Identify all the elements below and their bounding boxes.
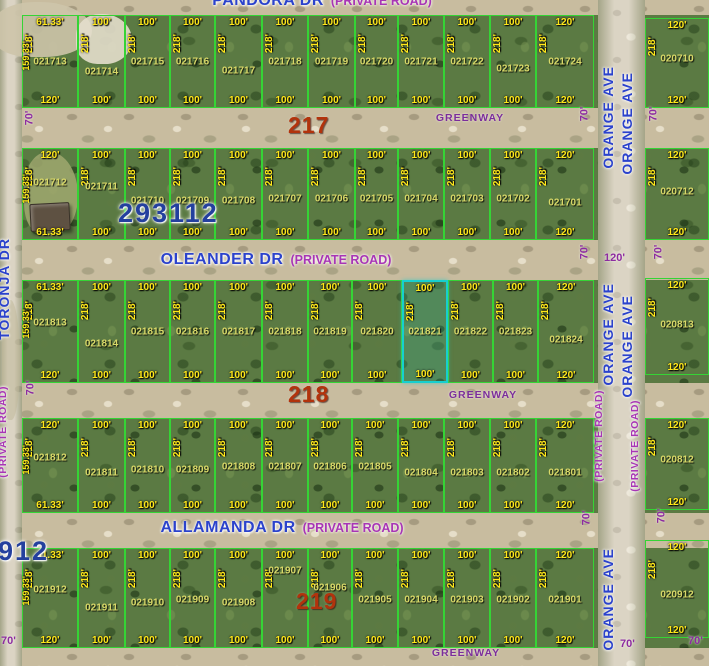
parcel-id-label: 021803 [445,467,489,478]
lot-frontage-label: 100' [491,420,535,431]
lot-frontage-label: 100' [353,635,397,646]
lot-frontage-label: 120' [646,420,708,431]
parcel-021723[interactable]: 100'100'218'021723 [490,15,536,108]
parcel-id-label: 021717 [216,65,261,76]
lot-frontage-label: 100' [171,500,214,511]
lot-depth-label: 218' [172,34,183,53]
parcel-021701[interactable]: 120'120'218'021701 [536,148,594,240]
parcel-021805[interactable]: 100'100'218'021805 [352,418,398,513]
lot-depth-label: 218' [538,167,549,186]
lot-depth-label: 218' [172,569,183,588]
lot-frontage-label: 100' [79,420,124,431]
lot-frontage-label: 100' [216,227,261,238]
lot-depth-label: 218' [217,301,228,320]
street-label-orange-ave: ORANGE AVE [600,548,616,651]
parcel-021804[interactable]: 100'100'218'021804 [398,418,444,513]
block-number-217: 217 [288,112,329,139]
road-width-label: 70' [655,509,667,524]
parcel-021705[interactable]: 100'100'218'021705 [355,148,398,240]
parcel-021716[interactable]: 100'100'218'021716 [170,15,215,108]
parcel-id-label: 021715 [126,56,169,67]
parcel-id-label: 021801 [537,467,593,478]
parcel-id-label: 021908 [216,597,261,608]
parcel-021719[interactable]: 100'100'218'021719 [308,15,355,108]
parcel-021908[interactable]: 100'100'218'021908 [215,548,262,648]
lot-frontage-label: 100' [263,370,307,381]
lot-depth-label: 218' [446,34,457,53]
parcel-id-label: 021822 [449,326,492,337]
lot-frontage-label: 100' [171,282,214,293]
parcel-021902[interactable]: 100'100'218'021902 [490,548,536,648]
parcel-id-label: 020912 [646,589,708,600]
lot-depth-label: 218' [357,167,368,186]
parcel-id-label: 021810 [126,465,169,476]
parcel-id-label: 021813 [23,318,77,329]
lot-frontage-label: 100' [79,150,124,161]
parcel-021802[interactable]: 100'100'218'021802 [490,418,536,513]
lot-depth-label: 218' [264,167,275,186]
lot-frontage-label: 100' [356,150,397,161]
parcel-020712[interactable]: 120'120'218'020712 [645,148,709,240]
greenway-label: GREENWAY [436,112,504,124]
lot-frontage-label: 100' [399,95,443,106]
parcel-id-label: 021809 [171,465,214,476]
parcel-021708[interactable]: 100'100'218'021708 [215,148,262,240]
lot-frontage-label: 100' [263,17,307,28]
parcel-021702[interactable]: 100'100'218'021702 [490,148,536,240]
lot-frontage-label: 120' [646,497,708,508]
lot-depth-label: 218' [492,167,503,186]
parcel-id-label: 021907 [263,565,307,576]
street-label-orange-ave: ORANGE AVE [600,283,616,386]
parcel-021801[interactable]: 120'120'218'021801 [536,418,594,513]
parcel-id-label: 021721 [399,56,443,67]
parcel-021721[interactable]: 100'100'218'021721 [398,15,444,108]
lot-frontage-label: 100' [491,227,535,238]
lot-depth-label: 218' [264,34,275,53]
lot-frontage-label: 120' [646,280,708,291]
parcel-id-label: 021722 [445,56,489,67]
lot-depth-label: 218' [400,438,411,457]
parcel-id-label: 021724 [537,56,593,67]
block-number-219: 219 [296,588,337,615]
lot-frontage-label: 100' [404,369,446,380]
parcel-021809[interactable]: 100'100'218'021809 [170,418,215,513]
parcel-id-label: 021821 [404,326,446,337]
parcel-020812[interactable]: 120'120'218'020812 [645,418,709,510]
parcel-021815[interactable]: 100'100'218'021815 [125,280,170,383]
street-label-toronja-dr: TORONJA DR [0,238,12,340]
parcel-id-label: 021704 [399,193,443,204]
lot-depth-label: 218' [357,34,368,53]
parcel-id-label: 020710 [646,53,708,64]
lot-depth-label: 218' [310,34,321,53]
street-label-orange-ave: ORANGE AVE [619,72,635,175]
plat-number-912: 912 [0,536,49,567]
lot-frontage-label: 100' [171,550,214,561]
lot-depth-label: 218' [310,301,321,320]
lot-frontage-label: 100' [445,95,489,106]
parcel-021724[interactable]: 120'120'218'021724 [536,15,594,108]
lot-depth-label: 218' [310,438,321,457]
lot-frontage-label: 100' [263,635,307,646]
lot-frontage-label: 100' [353,550,397,561]
lot-frontage-label: 100' [126,635,169,646]
parcel-id-label: 021807 [263,462,307,473]
road-width-label: 120' [604,252,625,264]
lot-frontage-label: 100' [309,227,354,238]
lot-depth-label: 218' [540,301,551,320]
parcel-id-label: 021911 [79,602,124,613]
lot-depth-label: 218' [172,301,183,320]
lot-frontage-label: 120' [23,635,77,646]
lot-depth-label: 218' [446,438,457,457]
lot-frontage-label: 100' [263,227,307,238]
lot-depth-label: 218' [450,301,461,320]
street-suffix-text: (PRIVATE ROAD) [303,521,404,535]
parcel-id-label: 021706 [309,193,354,204]
parcel-id-label: 021820 [353,326,401,337]
lot-depth-label: 218' [217,34,228,53]
lot-frontage-label: 100' [309,95,354,106]
lot-frontage-label: 100' [491,95,535,106]
lot-depth-label: 218' [172,167,183,186]
lot-frontage-label: 100' [216,500,261,511]
lot-frontage-label: 100' [126,500,169,511]
parcel-021909[interactable]: 100'100'218'021909 [170,548,215,648]
parcel-id-label: 021811 [79,467,124,478]
lot-frontage-label: 100' [126,420,169,431]
parcel-021818[interactable]: 100'100'218'021818 [262,280,308,383]
lot-depth-label: 218' [538,569,549,588]
lot-depth-label: 218' [400,34,411,53]
street-name-text: OLEANDER DR [161,251,284,269]
parcel-021901[interactable]: 120'120'218'021901 [536,548,594,648]
parcel-021712[interactable]: 120'61.33'218'159.33'021712 [22,148,78,240]
parcel-id-label: 021723 [491,63,535,74]
lot-frontage-label: 100' [491,17,535,28]
lot-depth-label: 218' [495,301,506,320]
lot-frontage-label: 100' [491,635,535,646]
lot-frontage-label: 120' [537,150,593,161]
parcel-id-label: 021912 [23,585,77,596]
block-number-218: 218 [288,381,329,408]
lot-frontage-label: 100' [216,95,261,106]
lot-frontage-label: 100' [399,550,443,561]
parcel-021717[interactable]: 100'100'218'021717 [215,15,262,108]
parcel-021821[interactable]: 100'100'218'021821 [402,280,448,383]
street-label-oleander-dr: OLEANDER DR(PRIVATE ROAD) [161,251,392,269]
parcel-021706[interactable]: 100'100'218'021706 [308,148,355,240]
greenway-label: GREENWAY [432,647,500,659]
lot-frontage-label: 100' [399,635,443,646]
lot-frontage-label: 100' [126,282,169,293]
lot-frontage-label: 120' [537,17,593,28]
lot-depth-label: 218' [647,560,658,579]
lot-frontage-label: 100' [399,500,443,511]
lot-depth-label: 218' [354,438,365,457]
lot-frontage-label: 100' [126,95,169,106]
parcel-021707[interactable]: 100'100'218'021707 [262,148,308,240]
lot-depth-label: 218' [127,301,138,320]
lot-frontage-label: 100' [263,420,307,431]
parcel-id-label: 021901 [537,594,593,605]
parcel-021808[interactable]: 100'100'218'021808 [215,418,262,513]
lot-depth-label: 218' [492,569,503,588]
lot-frontage-label: 100' [309,550,351,561]
parcel-id-label: 021910 [126,597,169,608]
street-suffix-text: (PRIVATE ROAD) [331,0,432,8]
parcel-021713[interactable]: 61.33'120'218'159.33'021713 [22,15,78,108]
lot-frontage-label: 100' [216,150,261,161]
lot-frontage-label: 100' [399,227,443,238]
parcel-021816[interactable]: 100'100'218'021816 [170,280,215,383]
parcel-021904[interactable]: 100'100'218'021904 [398,548,444,648]
lot-frontage-label: 100' [171,635,214,646]
lot-frontage-label: 100' [79,282,124,293]
lot-frontage-label: 100' [399,150,443,161]
parcel-id-label: 021814 [79,338,124,349]
lot-frontage-label: 100' [445,17,489,28]
lot-frontage-label: 120' [23,95,77,106]
parcel-id-label: 021702 [491,193,535,204]
road-width-label: 70' [652,245,664,260]
parcel-id-label: 021716 [171,56,214,67]
parcel-plat-map: 61.33'120'218'159.33'021713100'100'218'0… [0,0,709,666]
parcel-id-label: 021713 [23,56,77,67]
lot-frontage-label: 120' [537,420,593,431]
parcel-021811[interactable]: 100'100'218'021811 [78,418,125,513]
lot-frontage-label: 120' [539,370,593,381]
lot-frontage-label: 120' [646,542,708,553]
parcel-021715[interactable]: 100'100'218'021715 [125,15,170,108]
lot-depth-label: 218' [492,438,503,457]
lot-frontage-label: 120' [646,20,708,31]
parcel-021814[interactable]: 100'100'218'021814 [78,280,125,383]
lot-frontage-label: 100' [445,550,489,561]
road-width-label: 70' [578,107,590,122]
lot-frontage-label: 100' [216,17,261,28]
lot-frontage-label: 100' [309,370,351,381]
lot-depth-label: 218' [405,302,416,321]
parcel-id-label: 021711 [79,181,124,192]
lot-depth-label: 218' [80,438,91,457]
parcel-id-label: 021815 [126,326,169,337]
lot-frontage-label: 120' [539,282,593,293]
parcel-021722[interactable]: 100'100'218'021722 [444,15,490,108]
parcel-020813[interactable]: 120'120'218'020813 [645,278,709,375]
parcel-021718[interactable]: 100'100'218'021718 [262,15,308,108]
parcel-id-label: 021708 [216,196,261,207]
street-label-allamanda-dr: ALLAMANDA DR(PRIVATE ROAD) [160,519,403,537]
lot-depth-label: 218' [400,167,411,186]
street-label-orange-ave: ORANGE AVE [600,66,616,169]
parcel-021803[interactable]: 100'100'218'021803 [444,418,490,513]
lot-frontage-label: 100' [126,150,169,161]
parcel-id-label: 021904 [399,594,443,605]
lot-frontage-label: 61.33' [23,17,77,28]
lot-depth-label: 218' [446,167,457,186]
lot-frontage-label: 120' [23,420,77,431]
parcel-021812[interactable]: 120'61.33'218'159.33'021812 [22,418,78,513]
lot-frontage-label: 100' [494,282,537,293]
parcel-021823[interactable]: 100'100'218'021823 [493,280,538,383]
parcel-021807[interactable]: 100'100'218'021807 [262,418,308,513]
parcel-021905[interactable]: 100'100'218'021905 [352,548,398,648]
lot-frontage-label: 100' [353,370,401,381]
parcel-id-label: 021714 [79,67,124,78]
lot-depth-label: 218' [217,569,228,588]
parcel-id-label: 021808 [216,462,261,473]
lot-frontage-label: 100' [171,95,214,106]
lot-depth-label: 218' [217,438,228,457]
parcel-021903[interactable]: 100'100'218'021903 [444,548,490,648]
lot-frontage-label: 120' [23,150,77,161]
parcel-id-label: 021703 [445,193,489,204]
lot-depth-label: 218' [217,167,228,186]
lot-frontage-label: 120' [537,500,593,511]
parcel-id-label: 021824 [539,334,593,345]
parcel-id-label: 021909 [171,594,214,605]
road-width-label: 70' [647,107,659,122]
lot-depth-label: 218' [80,569,91,588]
parcel-021720[interactable]: 100'100'218'021720 [355,15,398,108]
parcel-id-label: 021819 [309,326,351,337]
parcel-021911[interactable]: 100'100'218'021911 [78,548,125,648]
parcel-020912[interactable]: 120'120'218'020912 [645,540,709,638]
lot-frontage-label: 100' [309,150,354,161]
lot-depth-label: 218' [127,438,138,457]
parcel-020710[interactable]: 120'120'218'020710 [645,18,709,108]
lot-depth-label: 218' [647,167,658,186]
lot-frontage-label: 100' [491,150,535,161]
parcel-021810[interactable]: 100'100'218'021810 [125,418,170,513]
lot-depth-label: 218' [127,34,138,53]
road-width-label: 70' [620,638,635,650]
street-label-pandora-dr: PANDORA DR(PRIVATE ROAD) [212,0,432,10]
road-width-label: 70' [23,111,35,126]
parcel-id-label: 021806 [309,462,351,473]
lot-frontage-label: 100' [309,282,351,293]
lot-frontage-label: 100' [445,500,489,511]
lot-frontage-label: 100' [399,17,443,28]
lot-frontage-label: 120' [646,150,708,161]
lot-frontage-label: 100' [216,370,261,381]
parcel-id-label: 021705 [356,193,397,204]
parcel-021704[interactable]: 100'100'218'021704 [398,148,444,240]
parcel-id-label: 021902 [491,594,535,605]
lot-frontage-label: 61.33' [23,500,77,511]
lot-frontage-label: 61.33' [23,282,77,293]
lot-frontage-label: 120' [537,635,593,646]
parcel-021819[interactable]: 100'100'218'021819 [308,280,352,383]
lot-frontage-label: 100' [263,500,307,511]
lot-depth-label: 218' [354,301,365,320]
plat-number-293112: 293112 [118,198,219,229]
parcel-id-label: 021720 [356,56,397,67]
lot-frontage-label: 100' [263,95,307,106]
lot-frontage-label: 100' [79,500,124,511]
lot-frontage-label: 100' [263,282,307,293]
street-name-text: PANDORA DR [212,0,324,10]
lot-depth-label: 218' [538,438,549,457]
lot-frontage-label: 100' [79,370,124,381]
lot-frontage-label: 100' [356,227,397,238]
lot-frontage-label: 100' [126,17,169,28]
road-width-label: 70' [1,635,16,647]
parcel-id-label: 021805 [353,462,397,473]
parcel-021806[interactable]: 100'100'218'021806 [308,418,352,513]
parcel-021714[interactable]: 100'100'218'021714 [78,15,125,108]
lot-frontage-label: 100' [263,550,307,561]
parcel-id-label: 021701 [537,198,593,209]
road-width-label: 70' [580,511,592,526]
greenway-label: GREENWAY [449,389,517,401]
lot-frontage-label: 100' [449,282,492,293]
lot-frontage-label: 100' [216,420,261,431]
lot-frontage-label: 100' [216,550,261,561]
lot-depth-label: 218' [264,438,275,457]
parcel-id-label: 021718 [263,56,307,67]
road-width-label: 70' [24,381,36,396]
parcel-id-label: 021719 [309,56,354,67]
lot-depth-label: 218' [127,167,138,186]
parcel-id-label: 021802 [491,467,535,478]
lot-frontage-label: 120' [646,227,708,238]
parcel-id-label: 021707 [263,193,307,204]
lot-frontage-label: 100' [171,370,214,381]
lot-frontage-label: 100' [171,150,214,161]
parcel-id-label: 021804 [399,467,443,478]
lot-frontage-label: 100' [353,282,401,293]
lot-frontage-label: 100' [79,635,124,646]
lot-depth-label: 218' [400,569,411,588]
lot-frontage-label: 100' [216,635,261,646]
lot-frontage-label: 100' [216,282,261,293]
parcel-id-label: 021812 [23,453,77,464]
street-label-private-road: (PRIVATE ROAD) [629,400,641,492]
lot-frontage-label: 100' [79,550,124,561]
lot-depth-label: 218' [80,301,91,320]
parcel-021820[interactable]: 100'100'218'021820 [352,280,402,383]
road-width-label: 70' [688,635,703,647]
lot-frontage-label: 100' [309,500,351,511]
parcel-021817[interactable]: 100'100'218'021817 [215,280,262,383]
parcel-id-label: 021817 [216,326,261,337]
street-name-text: ALLAMANDA DR [160,519,295,537]
lot-frontage-label: 100' [445,420,489,431]
lot-frontage-label: 100' [491,550,535,561]
lot-depth-label: 218' [647,298,658,317]
parcel-021824[interactable]: 120'120'218'021824 [538,280,594,383]
lot-frontage-label: 100' [491,500,535,511]
lot-depth-label: 218' [80,34,91,53]
parcel-id-label: 021905 [353,594,397,605]
lot-depth-label: 218' [492,34,503,53]
lot-depth-label: 218' [310,167,321,186]
parcel-021822[interactable]: 100'100'218'021822 [448,280,493,383]
lot-frontage-label: 100' [356,95,397,106]
parcel-021813[interactable]: 61.33'120'218'159.33'021813 [22,280,78,383]
parcel-id-label: 020812 [646,454,708,465]
lot-frontage-label: 100' [445,635,489,646]
lot-depth-label: 218' [538,34,549,53]
parcel-id-label: 021823 [494,326,537,337]
lot-depth-label: 218' [264,301,275,320]
lot-frontage-label: 100' [399,420,443,431]
parcel-021703[interactable]: 100'100'218'021703 [444,148,490,240]
parcel-021910[interactable]: 100'100'218'021910 [125,548,170,648]
